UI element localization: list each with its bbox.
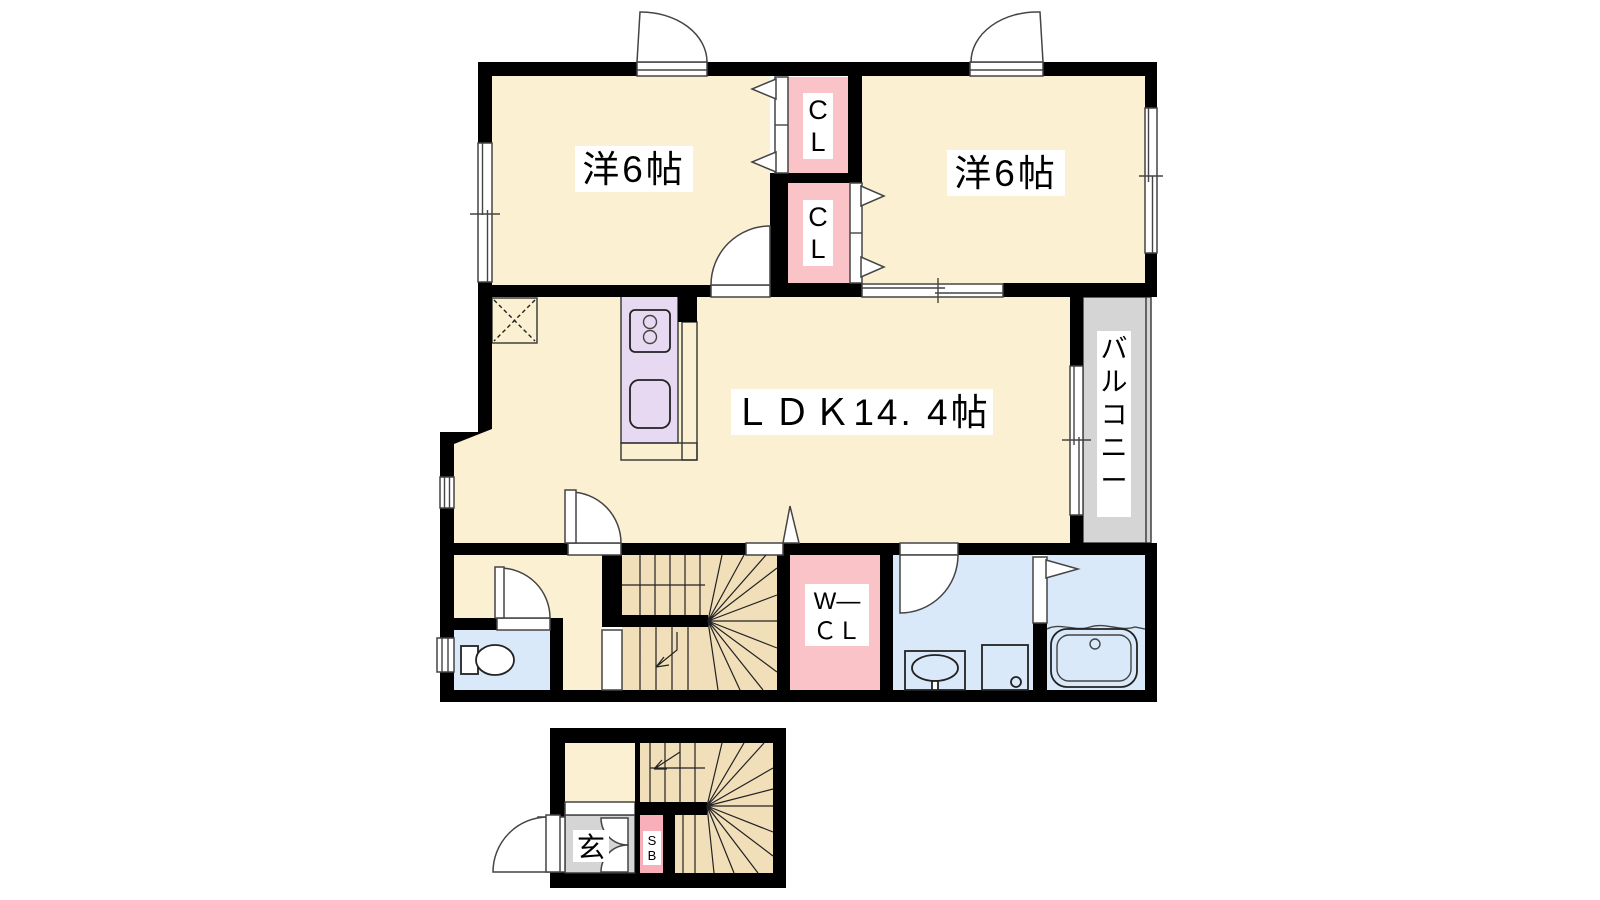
stairs-entry-opening xyxy=(602,630,622,690)
wall-segment xyxy=(770,183,788,283)
shoe-box-label-text: B xyxy=(648,848,657,863)
bedroom2-label: 洋6帖 xyxy=(947,150,1065,196)
wall-segment xyxy=(1145,543,1157,702)
door-arc xyxy=(637,12,707,62)
wall-segment xyxy=(770,283,862,297)
ldk-label: ＬＤＫ14. 4帖 xyxy=(731,389,993,435)
wall-segment xyxy=(848,62,862,173)
door-leaf xyxy=(565,490,576,543)
entrance-step xyxy=(565,802,635,815)
door-leaf xyxy=(495,567,504,618)
entry-opening-room2 xyxy=(970,12,1043,76)
ldk-label-text: ＬＤＫ14. 4帖 xyxy=(733,392,990,433)
door-arc xyxy=(971,12,1043,62)
wall-segment xyxy=(440,690,1157,702)
wall-segment xyxy=(678,285,697,322)
balcony-label-text: ル xyxy=(1101,367,1128,397)
wall-segment xyxy=(880,543,893,690)
wall-segment xyxy=(1003,283,1157,297)
shoe-box-label-text: S xyxy=(648,833,657,848)
wall-segment xyxy=(777,543,790,690)
balcony-label-text: バ xyxy=(1101,334,1128,364)
wall-segment xyxy=(663,815,675,873)
closet-upper-label-text: L xyxy=(810,127,825,157)
balcony-label-text: ニ xyxy=(1101,433,1128,463)
closet-upper-label: C L xyxy=(803,93,833,159)
toilet-icon xyxy=(461,645,514,675)
walk-in-closet-label-text: ＣＬ xyxy=(813,618,861,645)
walk-in-closet-label-text: W― xyxy=(814,588,861,615)
entry-door xyxy=(493,815,565,872)
window-toilet xyxy=(437,638,454,672)
closet-lower-label: C L xyxy=(803,200,833,266)
closet-lower-label-text: C xyxy=(808,202,828,232)
wall-segment xyxy=(478,285,711,297)
first-floor-plan: 玄 S B xyxy=(493,728,786,888)
balcony-label-text: ー xyxy=(1101,466,1128,496)
closet-lower-label-text: L xyxy=(810,234,825,264)
wall-segment xyxy=(635,802,707,815)
entrance-label: 玄 xyxy=(573,830,609,863)
wall-segment xyxy=(550,618,563,702)
balcony-label: バ ル コ ニ ー xyxy=(1097,331,1131,517)
balcony-label-text: コ xyxy=(1101,400,1128,430)
closet-upper-label-text: C xyxy=(808,95,828,125)
walk-in-closet-label: W― ＣＬ xyxy=(805,584,869,646)
door-leaf xyxy=(546,815,560,872)
entrance-label-text: 玄 xyxy=(577,832,605,863)
refrigerator-space xyxy=(492,298,537,343)
entry-opening-room1 xyxy=(637,12,707,76)
wall-segment xyxy=(478,62,1157,76)
wall-segment xyxy=(770,173,862,183)
bedroom1-label-text: 洋6帖 xyxy=(582,149,686,190)
wall-segment xyxy=(602,615,708,627)
door-arc xyxy=(493,817,548,872)
second-floor-plan: 洋6帖 洋6帖 ＬＤＫ14. 4帖 C L C L W― ＣＬ バ ル xyxy=(437,12,1163,702)
window-ldk-left xyxy=(440,477,454,508)
bedroom2-label-text: 洋6帖 xyxy=(954,153,1058,194)
shoe-box-label: S B xyxy=(643,831,661,865)
bedroom1-label: 洋6帖 xyxy=(575,146,693,192)
wall-segment xyxy=(1033,623,1047,690)
wall-segment xyxy=(440,543,1157,555)
floor-plan-page: 洋6帖 洋6帖 ＬＤＫ14. 4帖 C L C L W― ＣＬ バ ル xyxy=(0,0,1600,900)
floor-plan-drawing: 洋6帖 洋6帖 ＬＤＫ14. 4帖 C L C L W― ＣＬ バ ル xyxy=(0,0,1600,900)
